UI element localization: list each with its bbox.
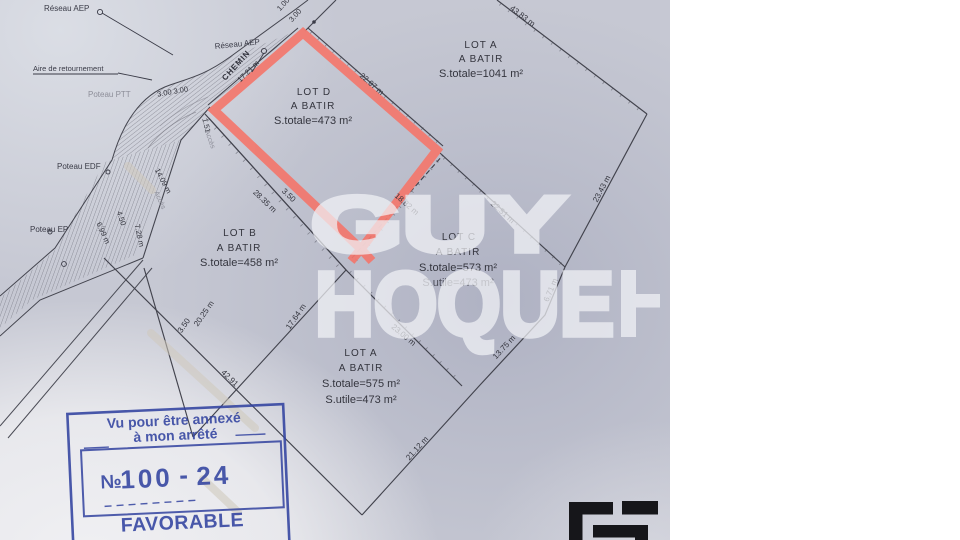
- svg-text:Aire de retournement: Aire de retournement: [33, 64, 104, 73]
- svg-text:LOT A: LOT A: [464, 40, 497, 51]
- svg-text:S.totale=575 m²: S.totale=575 m²: [322, 378, 400, 390]
- svg-text:Poteau EDF: Poteau EDF: [57, 162, 101, 171]
- svg-text:S.totale=473 m²: S.totale=473 m²: [274, 115, 352, 127]
- svg-text:S.totale=458 m²: S.totale=458 m²: [200, 257, 278, 269]
- svg-text:A BATIR: A BATIR: [291, 101, 336, 112]
- svg-text:S.utile=473 m²: S.utile=473 m²: [325, 394, 397, 406]
- svg-text:-: -: [179, 460, 189, 490]
- svg-text:S.totale=1041 m²: S.totale=1041 m²: [439, 68, 523, 80]
- svg-text:Réseau AEP: Réseau AEP: [44, 4, 89, 13]
- svg-text:HOQUE: HOQUE: [315, 255, 614, 355]
- svg-text:100: 100: [120, 462, 174, 494]
- svg-text:A BATIR: A BATIR: [339, 363, 384, 374]
- svg-text:24: 24: [196, 460, 232, 492]
- svg-text:LOT D: LOT D: [297, 87, 331, 98]
- svg-text:LOT B: LOT B: [223, 228, 257, 239]
- svg-text:№: №: [100, 472, 122, 494]
- svg-text:A BATIR: A BATIR: [217, 243, 262, 254]
- svg-text:A BATIR: A BATIR: [459, 54, 504, 65]
- svg-text:...T: ...T: [96, 226, 107, 233]
- svg-text:Poteau PTT: Poteau PTT: [88, 90, 131, 99]
- svg-text:Poteau EP: Poteau EP: [30, 225, 68, 234]
